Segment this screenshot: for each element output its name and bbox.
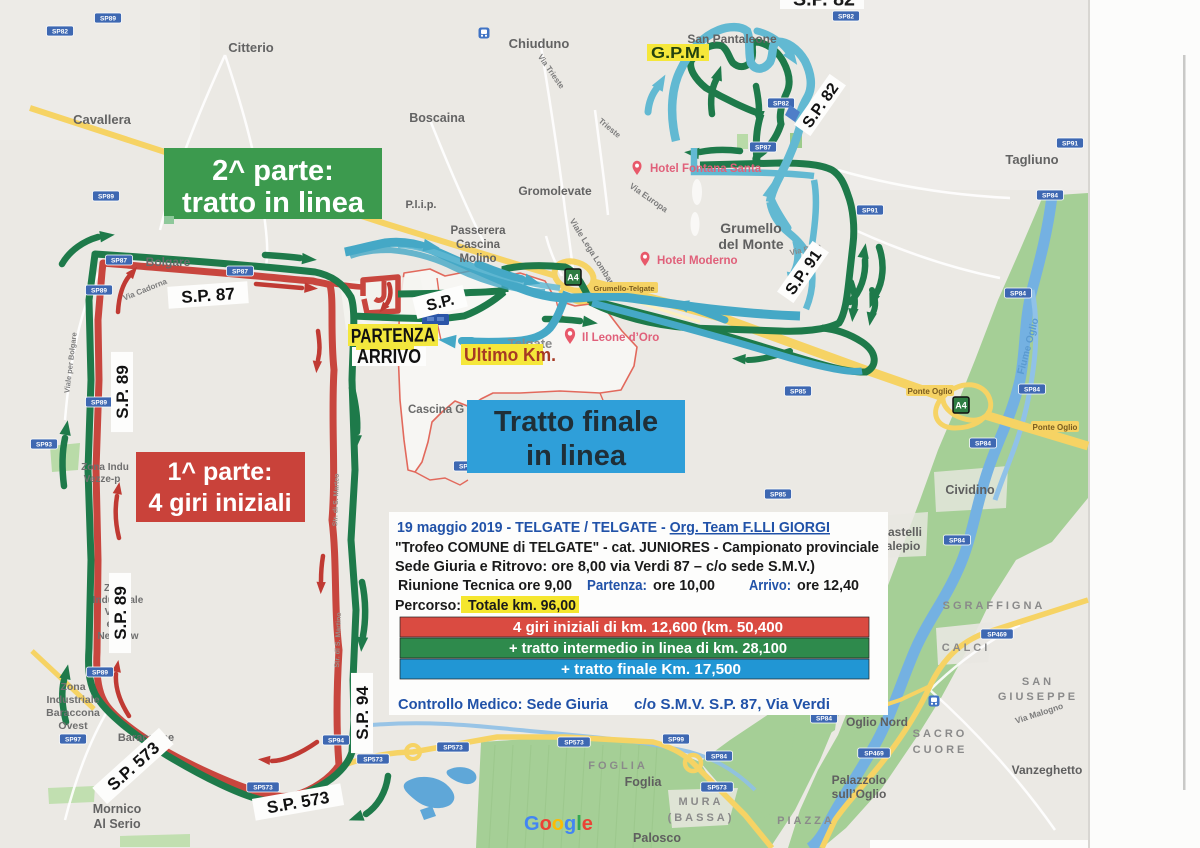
svg-text:Arrivo:: Arrivo: — [749, 578, 791, 594]
svg-text:S.P. 89: S.P. 89 — [113, 365, 132, 419]
svg-text:Partenza:: Partenza: — [587, 578, 647, 594]
svg-text:SP89: SP89 — [92, 670, 108, 677]
svg-text:Molino: Molino — [459, 253, 496, 265]
svg-text:SP573: SP573 — [253, 785, 273, 792]
svg-text:(BASSA): (BASSA) — [668, 812, 735, 824]
svg-text:SP91: SP91 — [862, 208, 878, 215]
svg-text:Bolgare: Bolgare — [146, 255, 191, 269]
svg-text:PARTENZA: PARTENZA — [351, 324, 435, 347]
svg-text:Foglia: Foglia — [625, 775, 663, 789]
svg-text:SP573: SP573 — [707, 785, 727, 792]
svg-text:SP573: SP573 — [363, 757, 383, 764]
svg-text:Boscaina: Boscaina — [409, 111, 466, 125]
svg-text:Gromolevate: Gromolevate — [518, 184, 592, 198]
svg-text:Tagliuno: Tagliuno — [1005, 152, 1058, 167]
svg-text:Cividino: Cividino — [945, 483, 995, 497]
svg-text:SP91: SP91 — [1062, 141, 1078, 148]
svg-text:sull’Oglio: sull’Oglio — [832, 787, 887, 801]
svg-text:S.P. 89: S.P. 89 — [111, 586, 130, 640]
svg-text:SP84: SP84 — [1024, 387, 1040, 394]
svg-text:Palosco: Palosco — [633, 831, 681, 845]
svg-text:SP97: SP97 — [65, 737, 81, 744]
svg-text:Zona: Zona — [60, 681, 85, 693]
svg-text:SP87: SP87 — [111, 258, 127, 265]
svg-text:2^ parte:: 2^ parte: — [212, 155, 334, 187]
svg-text:Cascina G: Cascina G — [408, 404, 464, 416]
svg-text:Sede Giuria e Ritrovo: ore 8,: Sede Giuria e Ritrovo: ore 8,00 via Verd… — [395, 559, 815, 575]
svg-text:SP84: SP84 — [1010, 291, 1026, 298]
svg-text:in linea: in linea — [526, 440, 627, 472]
svg-text:SP573: SP573 — [564, 740, 584, 747]
svg-text:astelli: astelli — [888, 525, 922, 539]
svg-text:1^ parte:: 1^ parte: — [168, 458, 273, 486]
svg-text:4 giri iniziali di km. 12,6: 4 giri iniziali di km. 12,600 (km. 50,40… — [513, 620, 783, 636]
svg-text:Google: Google — [524, 813, 593, 835]
svg-text:A4: A4 — [955, 401, 967, 411]
svg-text:Grumello-Telgate: Grumello-Telgate — [593, 284, 654, 293]
svg-text:del Monte: del Monte — [718, 236, 784, 252]
svg-text:SP84: SP84 — [1042, 193, 1058, 200]
svg-text:SP573: SP573 — [443, 745, 463, 752]
svg-text:SP89: SP89 — [98, 194, 114, 201]
svg-text:SP84: SP84 — [975, 441, 991, 448]
svg-text:A4: A4 — [567, 273, 579, 283]
svg-text:MURA: MURA — [679, 796, 724, 808]
svg-text:S.P. 82: S.P. 82 — [793, 0, 855, 11]
svg-text:CALCI: CALCI — [942, 642, 991, 654]
svg-text:ore 12,40: ore 12,40 — [797, 578, 859, 594]
svg-text:SP84: SP84 — [816, 716, 832, 723]
svg-text:PIAZZA: PIAZZA — [777, 815, 835, 827]
svg-text:Palazzolo: Palazzolo — [832, 773, 887, 787]
svg-text:Ponte Oglio: Ponte Oglio — [908, 387, 953, 396]
svg-text:P.l.i.p.: P.l.i.p. — [406, 199, 437, 211]
svg-text:Percorso:: Percorso: — [395, 598, 461, 614]
svg-text:ARRIVO: ARRIVO — [357, 346, 421, 368]
svg-text:SP87: SP87 — [755, 145, 771, 152]
svg-text:SP93: SP93 — [36, 442, 52, 449]
svg-text:Controllo Medico: Sede Giur: Controllo Medico: Sede Giuria — [398, 696, 609, 713]
svg-text:SP89: SP89 — [100, 16, 116, 23]
svg-text:Industriale: Industriale — [46, 694, 99, 706]
svg-text:Citterio: Citterio — [228, 40, 274, 55]
svg-text:SAN: SAN — [1022, 676, 1054, 688]
svg-text:Mornico: Mornico — [93, 802, 142, 816]
svg-text:SP82: SP82 — [773, 101, 789, 108]
svg-text:GIUSEPPE: GIUSEPPE — [998, 691, 1078, 703]
svg-text:Passerera: Passerera — [451, 225, 507, 237]
svg-text:SP94: SP94 — [328, 738, 344, 745]
svg-text:Ultimo Km.: Ultimo Km. — [464, 345, 556, 365]
svg-text:Totale km. 96,00: Totale km. 96,00 — [468, 598, 576, 614]
svg-text:SP82: SP82 — [838, 14, 854, 21]
svg-text:SP87: SP87 — [232, 269, 248, 276]
svg-text:Vezze-p: Vezze-p — [84, 474, 121, 485]
svg-text:SP89: SP89 — [91, 400, 107, 407]
svg-text:S.P. 94: S.P. 94 — [353, 686, 372, 740]
svg-text:SP469: SP469 — [864, 751, 884, 758]
svg-text:Cavallera: Cavallera — [73, 112, 132, 127]
svg-text:SP89: SP89 — [91, 288, 107, 295]
svg-text:SP82: SP82 — [52, 29, 68, 36]
svg-text:SGRAFFIGNA: SGRAFFIGNA — [943, 600, 1046, 612]
svg-text:G.P.M.: G.P.M. — [651, 45, 705, 62]
svg-text:S.P. 87: S.P. 87 — [181, 284, 236, 307]
svg-text:Zona Indu: Zona Indu — [81, 462, 129, 473]
svg-text:Riunione Tecnica ore 9,00: Riunione Tecnica ore 9,00 — [398, 578, 572, 594]
svg-text:tratto in linea: tratto in linea — [182, 187, 365, 219]
svg-text:Cascina: Cascina — [456, 239, 501, 251]
svg-text:Hotel Moderno: Hotel Moderno — [657, 255, 738, 267]
svg-text:19 maggio 2019 - TELGATE / TEL: 19 maggio 2019 - TELGATE / TELGATE - Org… — [397, 519, 830, 536]
svg-text:SP84: SP84 — [949, 538, 965, 545]
svg-text:+ tratto intermedio in linea d: + tratto intermedio in linea di km. 28,1… — [509, 641, 787, 657]
svg-text:SP84: SP84 — [711, 754, 727, 761]
svg-text:SP469: SP469 — [987, 632, 1007, 639]
svg-text:Baraccona: Baraccona — [46, 707, 100, 719]
svg-text:Hotel Fontana Santa: Hotel Fontana Santa — [650, 163, 762, 175]
svg-text:Ponte Oglio: Ponte Oglio — [1033, 423, 1078, 432]
svg-text:SP85: SP85 — [790, 389, 806, 396]
svg-text:alepio: alepio — [886, 539, 921, 553]
svg-text:FOGLIA: FOGLIA — [588, 760, 648, 772]
svg-text:ore 10,00: ore 10,00 — [653, 578, 715, 594]
svg-text:CUORE: CUORE — [913, 744, 968, 756]
svg-text:Oglio Nord: Oglio Nord — [846, 715, 908, 729]
svg-text:"Trofeo COMUNE di TELGATE" -: "Trofeo COMUNE di TELGATE" - cat. JUNIOR… — [395, 540, 879, 556]
svg-text:Chiuduno: Chiuduno — [509, 36, 570, 51]
svg-text:SP99: SP99 — [668, 737, 684, 744]
svg-text:SACRO: SACRO — [913, 728, 968, 740]
svg-text:Ovest: Ovest — [58, 720, 88, 732]
svg-text:Al Serio: Al Serio — [93, 817, 141, 831]
svg-text:4 giri iniziali: 4 giri iniziali — [148, 489, 291, 517]
svg-text:Vanzeghetto: Vanzeghetto — [1012, 763, 1083, 777]
svg-text:SP85: SP85 — [770, 492, 786, 499]
svg-text:c/o S.M.V. S.P. 87, Via Ver: c/o S.M.V. S.P. 87, Via Verdi — [634, 696, 830, 713]
svg-text:+ tratto finale Km. 17,500: + tratto finale Km. 17,500 — [561, 662, 741, 678]
svg-text:Grumello: Grumello — [720, 220, 781, 236]
svg-text:San Pantaleone: San Pantaleone — [687, 32, 777, 46]
svg-text:Tratto finale: Tratto finale — [494, 406, 658, 438]
svg-text:Il Leone d’Oro: Il Leone d’Oro — [582, 332, 659, 344]
